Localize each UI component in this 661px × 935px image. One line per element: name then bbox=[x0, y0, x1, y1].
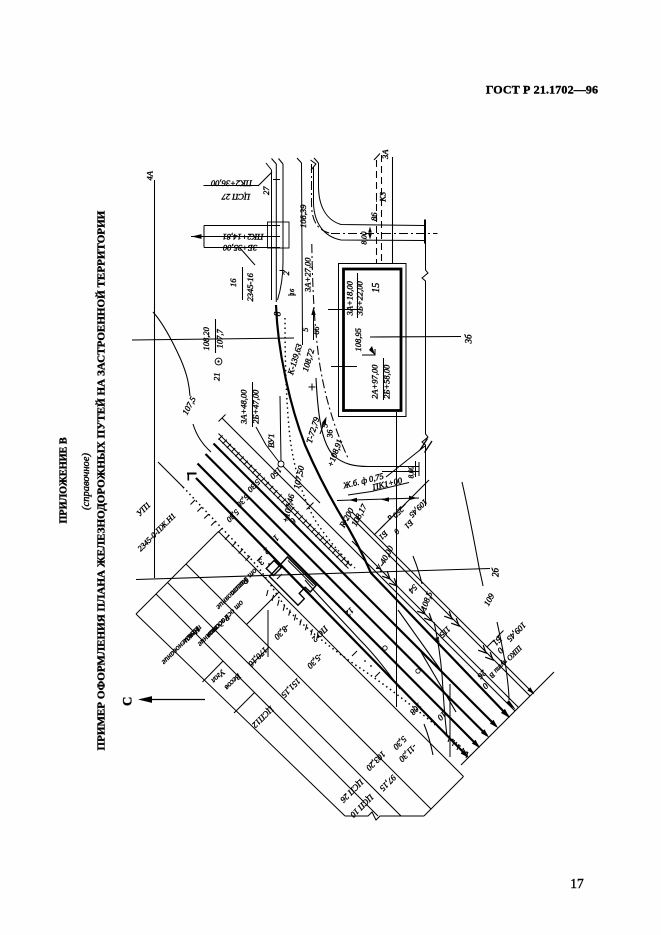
svg-text:27: 27 bbox=[261, 186, 271, 195]
svg-text:108: 108 bbox=[408, 701, 425, 718]
svg-text:УП1: УП1 bbox=[134, 500, 152, 518]
svg-text:ПО 2: ПО 2 bbox=[309, 623, 330, 644]
svg-text:ПК2+14,81: ПК2+14,81 bbox=[223, 232, 265, 242]
svg-text:ЦСП12: ЦСП12 bbox=[250, 704, 277, 731]
svg-text:ШКО пути В: ШКО пути В bbox=[487, 643, 524, 680]
svg-text:109,45: 109,45 bbox=[505, 620, 529, 644]
svg-text:150: 150 bbox=[268, 465, 285, 482]
svg-text:107,5: 107,5 bbox=[180, 395, 198, 417]
svg-text:103,20: 103,20 bbox=[364, 749, 388, 773]
svg-text:54: 54 bbox=[406, 583, 420, 597]
svg-text:86: 86 bbox=[369, 212, 379, 221]
svg-text:16: 16 bbox=[289, 288, 296, 295]
svg-text:109: 109 bbox=[481, 591, 496, 608]
svg-text:8,00: 8,00 bbox=[408, 466, 416, 479]
svg-text:(справочное): (справочное) bbox=[81, 453, 92, 510]
svg-text:5: 5 bbox=[301, 328, 310, 332]
svg-text:21: 21 bbox=[212, 373, 222, 382]
svg-text:108,39: 108,39 bbox=[298, 204, 308, 228]
svg-text:ГОСТ Р 21.1702—96: ГОСТ Р 21.1702—96 bbox=[486, 83, 598, 97]
svg-text:3А+48,00: 3А+48,00 bbox=[239, 389, 249, 425]
svg-text:К3: К3 bbox=[378, 192, 388, 203]
svg-text:5,30: 5,30 bbox=[235, 493, 251, 509]
svg-text:4А: 4А bbox=[145, 170, 155, 180]
svg-text:от базиса: от базиса bbox=[228, 567, 259, 598]
svg-text:К-139,63: К-139,63 bbox=[285, 342, 304, 376]
svg-text:ПРИЛОЖЕНИЕ В: ПРИЛОЖЕНИЕ В bbox=[59, 437, 70, 523]
svg-text:Т-72,79: Т-72,79 bbox=[304, 415, 322, 444]
svg-text:26: 26 bbox=[475, 668, 489, 682]
svg-text:2345-0-ПЖ.Н1: 2345-0-ПЖ.Н1 bbox=[136, 511, 178, 553]
svg-text:15: 15 bbox=[371, 283, 382, 293]
svg-text:36: 36 bbox=[326, 430, 335, 439]
svg-text:16: 16 bbox=[228, 278, 238, 287]
svg-text:2А+97,00: 2А+97,00 bbox=[370, 364, 380, 399]
svg-text:3Б+22,00: 3Б+22,00 bbox=[355, 280, 365, 316]
svg-text:3б: 3б bbox=[464, 334, 474, 345]
svg-text:ПК2+36,00: ПК2+36,00 bbox=[210, 179, 253, 189]
svg-text:Б1: Б1 bbox=[491, 634, 505, 648]
svg-text:2345-16: 2345-16 bbox=[245, 272, 255, 301]
svg-text:107,7: 107,7 bbox=[215, 328, 225, 348]
svg-text:ПРИМЕР ОФОРМЛЕНИЯ ПЛАНА ЖЕЛЕЗН: ПРИМЕР ОФОРМЛЕНИЯ ПЛАНА ЖЕЛЕЗНОДОРОЖНЫХ … bbox=[96, 210, 108, 750]
svg-text:2б: 2б bbox=[491, 568, 501, 578]
svg-text:108,20: 108,20 bbox=[201, 326, 211, 350]
svg-text:17: 17 bbox=[570, 876, 584, 891]
svg-text:ЦСП 27: ЦСП 27 bbox=[221, 192, 251, 202]
svg-text:С: С bbox=[120, 697, 135, 706]
svg-text:108,5: 108,5 bbox=[418, 590, 434, 611]
svg-text:97,15: 97,15 bbox=[378, 773, 399, 794]
svg-text:2Б+47,00: 2Б+47,00 bbox=[251, 389, 261, 424]
svg-text:109,45: 109,45 bbox=[407, 497, 429, 519]
svg-text:ВУ1: ВУ1 bbox=[266, 434, 276, 448]
svg-text:Угол: Угол bbox=[209, 668, 227, 686]
svg-text:-8,30: -8,30 bbox=[272, 622, 292, 642]
svg-text:3А+18,00: 3А+18,00 bbox=[345, 280, 355, 316]
svg-text:108,95: 108,95 bbox=[353, 328, 363, 351]
svg-text:170,10: 170,10 bbox=[246, 645, 270, 669]
svg-text:0: 0 bbox=[480, 681, 491, 692]
svg-text:12: 12 bbox=[343, 606, 357, 620]
svg-text:66: 66 bbox=[312, 327, 321, 335]
svg-text:+108,91: +108,91 bbox=[325, 438, 344, 469]
svg-text:151,15: 151,15 bbox=[279, 676, 303, 700]
svg-text:3А+27,00: 3А+27,00 bbox=[303, 257, 313, 293]
svg-text:8,00: 8,00 bbox=[360, 231, 369, 244]
svg-text:5: 5 bbox=[321, 424, 330, 428]
svg-text:-5,30: -5,30 bbox=[305, 651, 325, 671]
svg-text:10: 10 bbox=[435, 710, 449, 724]
svg-text:2Б+58,00: 2Б+58,00 bbox=[382, 364, 392, 399]
